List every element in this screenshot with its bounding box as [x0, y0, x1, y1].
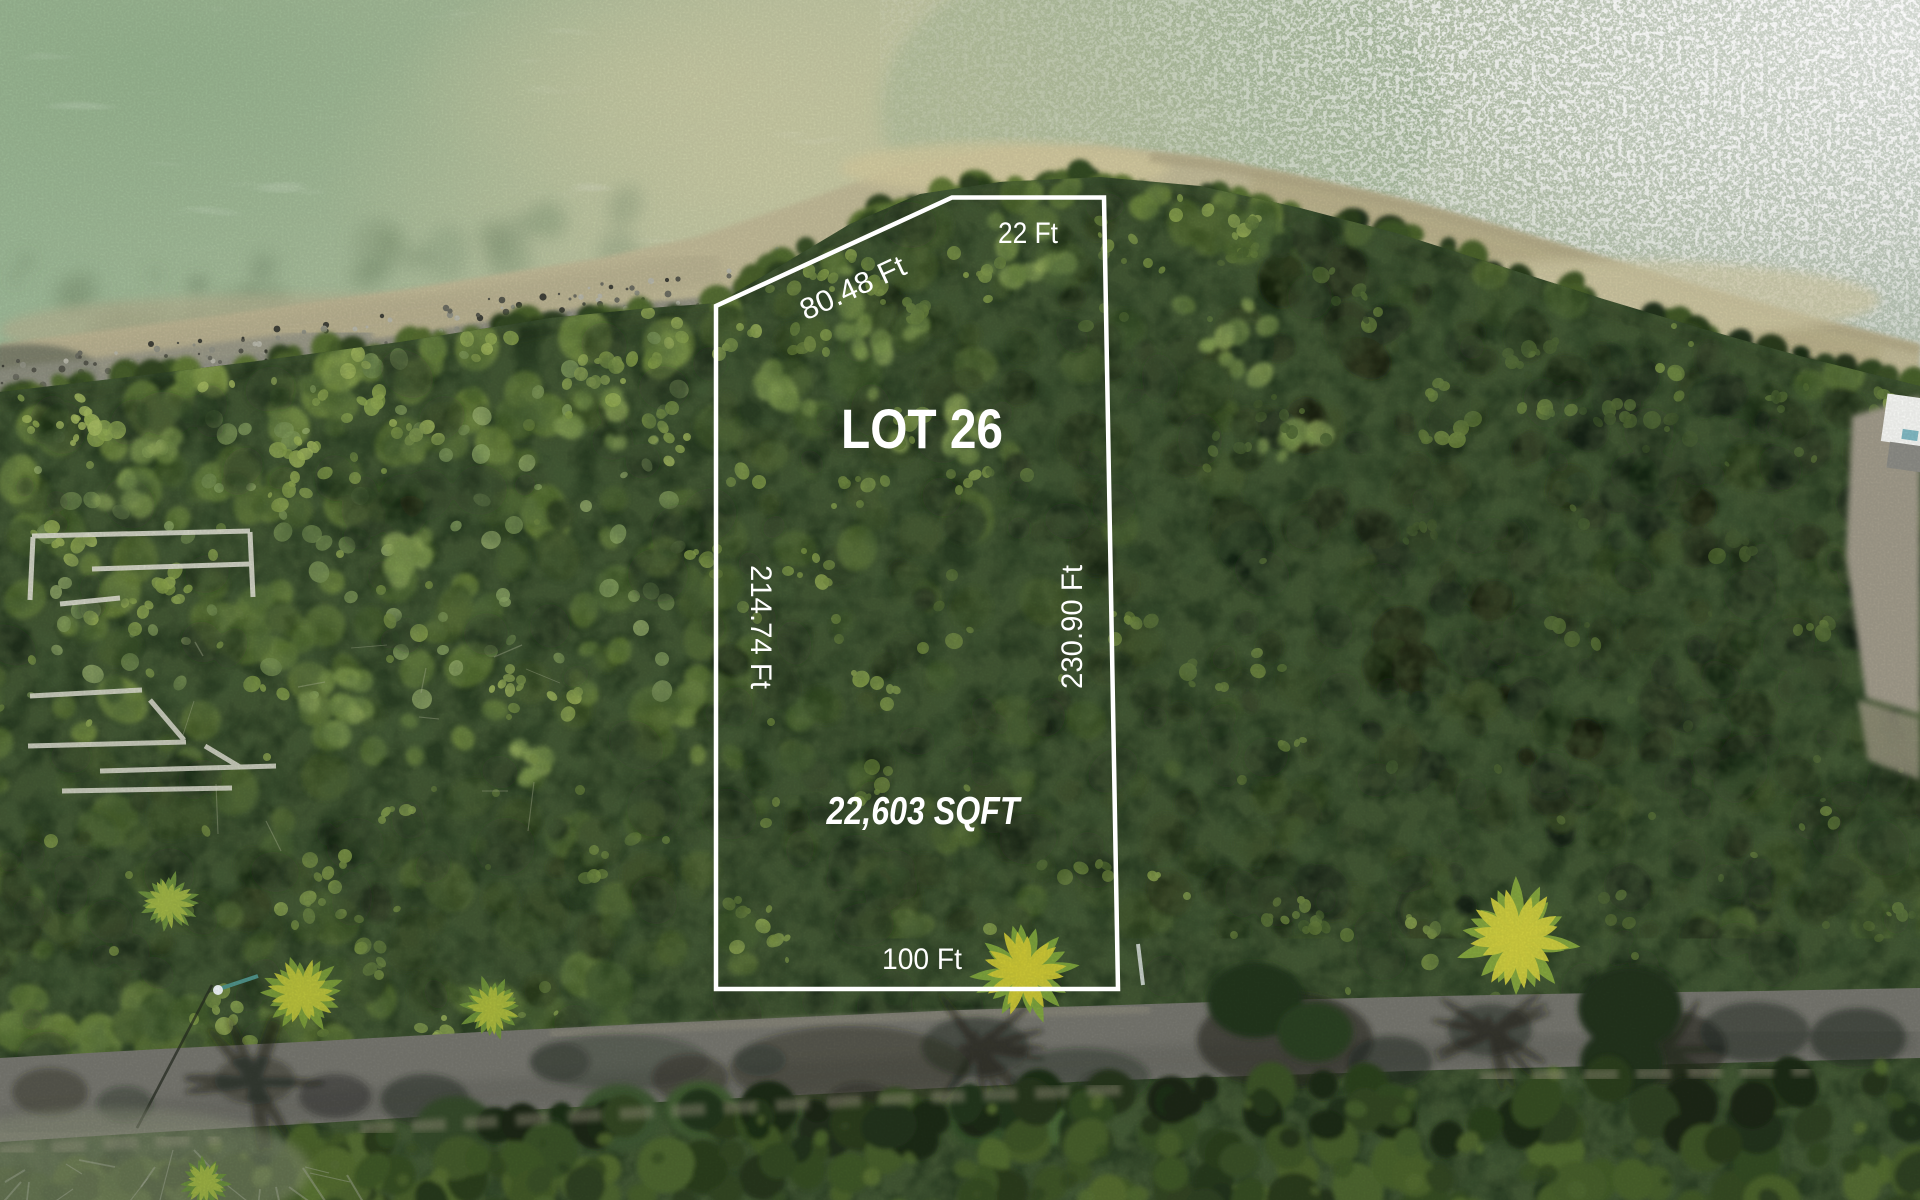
- svg-text:100 Ft: 100 Ft: [882, 943, 963, 976]
- svg-text:22,603 SQFT: 22,603 SQFT: [826, 790, 1022, 833]
- svg-text:214.74 Ft: 214.74 Ft: [744, 565, 777, 690]
- svg-text:LOT 26: LOT 26: [841, 397, 1003, 460]
- svg-text:22 Ft: 22 Ft: [998, 217, 1059, 250]
- svg-text:230.90 Ft: 230.90 Ft: [1056, 564, 1089, 689]
